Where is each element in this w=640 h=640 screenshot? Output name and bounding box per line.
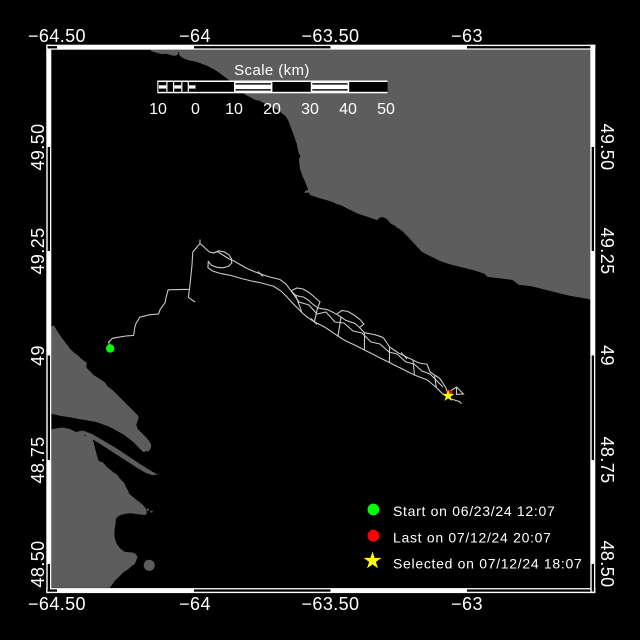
svg-text:10: 10 <box>149 101 167 118</box>
svg-text:−64: −64 <box>179 594 211 614</box>
svg-text:−64.50: −64.50 <box>28 594 86 614</box>
svg-text:49.50: 49.50 <box>597 123 617 170</box>
svg-text:−63.50: −63.50 <box>302 26 360 46</box>
svg-text:40: 40 <box>339 101 357 118</box>
svg-text:48.50: 48.50 <box>597 540 617 587</box>
svg-text:Start on 06/23/24 12:07: Start on 06/23/24 12:07 <box>393 503 555 519</box>
svg-text:30: 30 <box>301 101 319 118</box>
svg-text:48.50: 48.50 <box>28 540 48 587</box>
svg-text:Last on 07/12/24 20:07: Last on 07/12/24 20:07 <box>393 529 552 545</box>
svg-text:49: 49 <box>597 345 617 366</box>
svg-text:Selected on 07/12/24 18:07: Selected on 07/12/24 18:07 <box>393 556 582 572</box>
svg-text:0: 0 <box>191 101 200 118</box>
svg-text:−63: −63 <box>451 26 483 46</box>
svg-text:50: 50 <box>377 101 395 118</box>
svg-text:−64: −64 <box>179 26 211 46</box>
svg-text:49.50: 49.50 <box>28 123 48 170</box>
svg-text:49: 49 <box>28 345 48 366</box>
svg-text:Scale (km): Scale (km) <box>234 62 310 79</box>
svg-text:48.75: 48.75 <box>28 436 48 483</box>
svg-text:−63.50: −63.50 <box>302 594 360 614</box>
svg-text:49.25: 49.25 <box>28 227 48 274</box>
svg-text:49.25: 49.25 <box>597 227 617 274</box>
svg-text:−63: −63 <box>451 594 483 614</box>
svg-text:−64.50: −64.50 <box>28 26 86 46</box>
svg-text:48.75: 48.75 <box>597 436 617 483</box>
svg-text:20: 20 <box>263 101 281 118</box>
svg-text:10: 10 <box>225 101 243 118</box>
